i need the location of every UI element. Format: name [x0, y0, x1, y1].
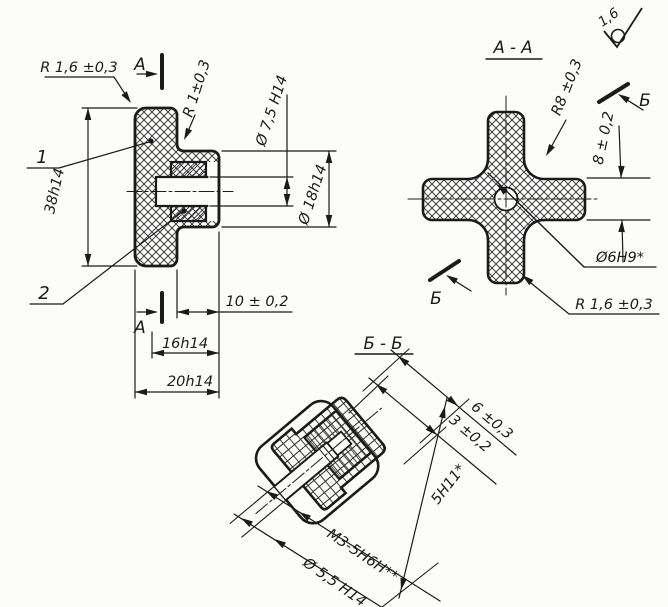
- metal-insert-upper: [171, 162, 206, 177]
- callout-dot-2: [181, 208, 186, 213]
- dim-hole-aa: Ø6H9*: [595, 250, 644, 266]
- cutting-plane-b-bottom: [430, 261, 459, 280]
- section-aa-view: А - А R8 ±0,3 8 ± 0,2 Ø6H9* R 1,6 ±0,3: [408, 38, 659, 314]
- metal-insert-lower: [171, 206, 206, 221]
- callout-dot-1: [148, 138, 153, 143]
- section-bb-view: Б - Б 6 ±0,3 3 ±0,2: [205, 334, 516, 607]
- dim-corner-radius: R 1,6 ±0,3: [40, 60, 118, 76]
- section-aa-title: А - А: [492, 38, 532, 57]
- dim-hole-dia: Ø 7,5 H14: [253, 74, 291, 149]
- dim-arm-width: 8 ± 0,2: [591, 110, 618, 166]
- dim-hub-length: 10 ± 0,2: [226, 294, 289, 310]
- drawing-canvas: 38h14 Ø 7,5 H14 Ø 18h14 10 ± 0,2 16h14 2…: [0, 0, 668, 607]
- roughness-mark: 1,6: [595, 5, 642, 47]
- dim-length-20: 20h14: [167, 374, 213, 390]
- section-bb-title: Б - Б: [363, 334, 402, 353]
- dim-hub-dia: Ø 18h14: [296, 163, 331, 228]
- cut-label-a-top: А: [133, 55, 146, 75]
- dim-fillet-radius: R 1±0,3: [180, 58, 213, 119]
- callout-flange: 1: [36, 147, 47, 168]
- roughness-value: 1,6: [595, 5, 622, 30]
- drawing-sheet: 38h14 Ø 7,5 H14 Ø 18h14 10 ± 0,2 16h14 2…: [0, 0, 668, 607]
- cut-label-b-top: Б: [639, 91, 651, 111]
- callout-insert: 2: [38, 283, 49, 304]
- dim-bb-square: 5H11*: [428, 462, 469, 508]
- dim-height: 38h14: [42, 167, 68, 216]
- dim-corner-aa: R 1,6 ±0,3: [575, 297, 653, 313]
- dim-inner-fillet: R8 ±0,3: [549, 57, 586, 118]
- main-view: 38h14 Ø 7,5 H14 Ø 18h14 10 ± 0,2 16h14 2…: [27, 55, 336, 398]
- cut-label-a-bottom: А: [133, 318, 146, 338]
- dim-length-16: 16h14: [162, 336, 208, 352]
- cut-label-b-bottom: Б: [430, 289, 442, 309]
